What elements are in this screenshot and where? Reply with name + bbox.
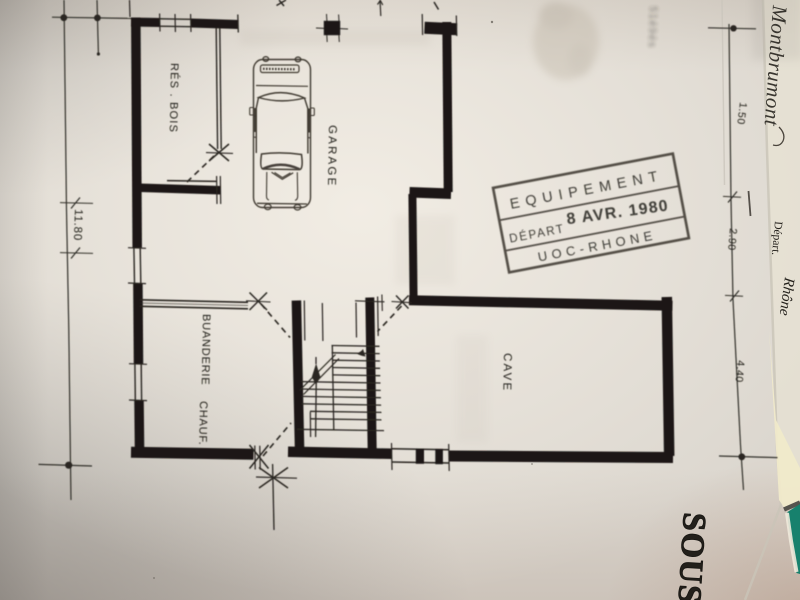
svg-text:RÉS . BOIS: RÉS . BOIS (167, 63, 181, 133)
svg-text:GARAGE: GARAGE (325, 125, 338, 188)
svg-text:11.80: 11.80 (71, 209, 84, 241)
svg-text:4.40: 4.40 (733, 360, 747, 383)
svg-text:DÉPART: DÉPART (508, 222, 566, 245)
svg-text:8 AVR. 1980: 8 AVR. 1980 (566, 197, 670, 228)
svg-text:51é9és: 51é9és (646, 6, 659, 48)
svg-text:BUANDERIE: BUANDERIE (199, 314, 212, 386)
svg-text:CHAUF.: CHAUF. (196, 401, 209, 446)
svg-text:1.50: 1.50 (734, 102, 749, 126)
svg-text:2.90: 2.90 (725, 228, 739, 251)
svg-text:SOUS: SOUS (670, 512, 712, 600)
svg-text:CAVE: CAVE (500, 353, 513, 392)
